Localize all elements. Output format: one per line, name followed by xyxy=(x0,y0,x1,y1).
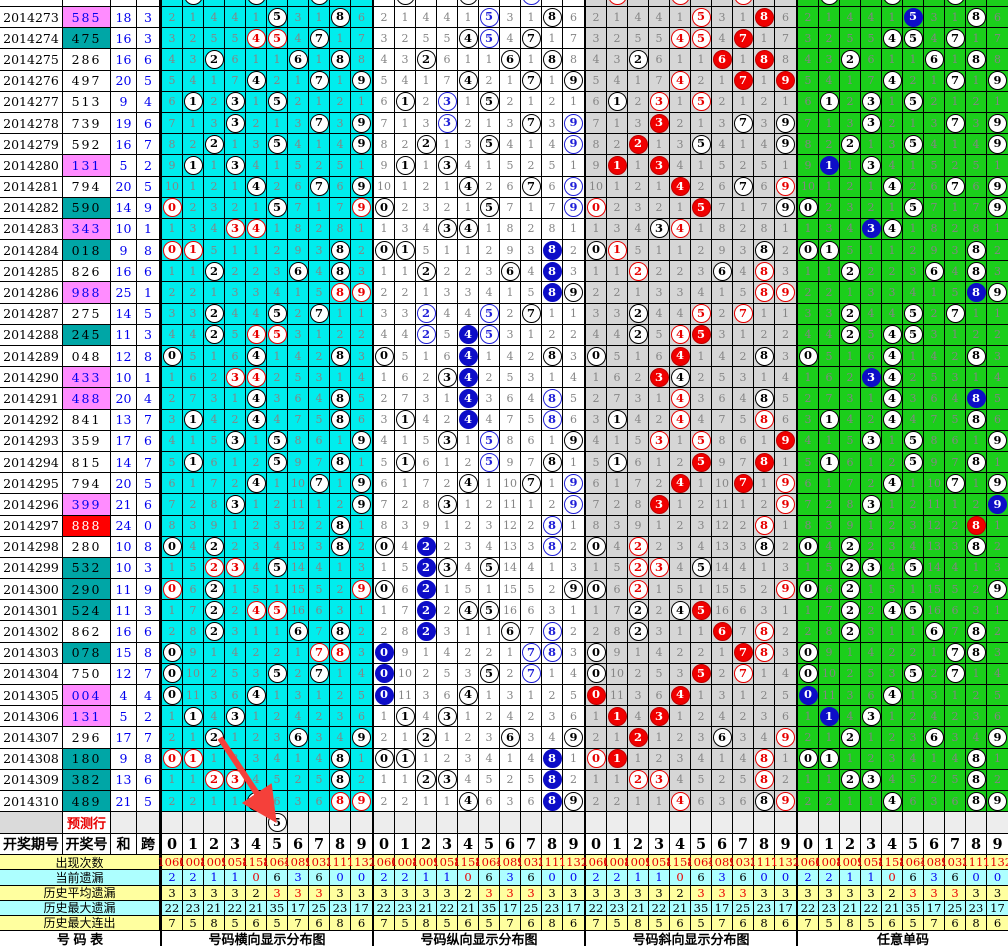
grid-cell: 1 xyxy=(670,198,691,219)
grid-cell: 1 xyxy=(246,431,267,452)
grid-cell: 3 xyxy=(225,770,246,791)
grid-cell: 8 xyxy=(966,219,987,240)
stat-value: 22 xyxy=(162,901,183,916)
grid-cell: 5 xyxy=(521,579,542,600)
grid-cell: 2 xyxy=(840,579,861,600)
prediction-cell xyxy=(416,812,437,834)
grid-cell: 9 xyxy=(775,727,796,748)
grid-cell: 6 xyxy=(966,177,987,198)
stat-value: 3 xyxy=(754,886,775,901)
grid-cell: 1 xyxy=(903,113,924,134)
draw-row: 2014289048128051641428305164142830516414… xyxy=(0,346,1008,367)
grid-cell: 4 xyxy=(903,282,924,303)
grid-cell: 7 xyxy=(437,71,458,92)
panel-diagonal: 2213341589 xyxy=(584,282,796,303)
draw-digit-circle: 2 xyxy=(417,558,436,577)
draw-digit-circle: 1 xyxy=(396,156,415,175)
grid-cell: 4 xyxy=(775,367,796,388)
grid-cell: 1 xyxy=(819,749,840,770)
grid-cell: 1 xyxy=(628,71,649,92)
draw-digit-circle: 3 xyxy=(438,92,457,111)
draw-digit-circle: 8 xyxy=(755,643,774,662)
grid-cell: 2 xyxy=(628,600,649,621)
grid-cell: 1 xyxy=(395,240,416,261)
number-cell: 290 xyxy=(63,579,111,600)
grid-cell: 3 xyxy=(330,113,351,134)
grid-cell: 2 xyxy=(945,155,966,176)
grid-cell: 4 xyxy=(374,431,395,452)
draw-digit-circle: 4 xyxy=(459,71,478,90)
grid-cell: 1 xyxy=(607,261,628,282)
grid-cell: 2 xyxy=(903,706,924,727)
grid-cell: 8 xyxy=(586,134,607,155)
grid-cell: 4 xyxy=(733,749,754,770)
draw-row-labels: 2014304750127 xyxy=(0,664,160,685)
grid-cell: 1 xyxy=(754,71,775,92)
grid-cell: 8 xyxy=(586,516,607,537)
draw-digit-circle: 9 xyxy=(776,198,795,217)
grid-cell: 8 xyxy=(542,219,563,240)
grid-cell: 4 xyxy=(374,49,395,70)
grid-cell: 3 xyxy=(798,410,819,431)
grid-cell: 1 xyxy=(670,621,691,642)
grid-cell: 9 xyxy=(204,516,225,537)
draw-row-labels: 2014302862166 xyxy=(0,621,160,642)
grid-cell: 3 xyxy=(649,367,670,388)
stat-value: 3 xyxy=(288,870,309,885)
draw-digit-circle: 5 xyxy=(904,325,923,344)
grid-cell: 9 xyxy=(351,71,372,92)
grid-cell: 4 xyxy=(712,134,733,155)
number-cell: 988 xyxy=(63,282,111,303)
prediction-cell xyxy=(162,812,183,834)
stat-value: 17 xyxy=(351,901,372,916)
grid-cell: 5 xyxy=(458,579,479,600)
sum-cell: 13 xyxy=(111,410,137,431)
grid-cell: 5 xyxy=(903,28,924,49)
grid-cell: 6 xyxy=(712,49,733,70)
stat-value: 3 xyxy=(712,886,733,901)
draw-digit-circle: 4 xyxy=(247,325,266,344)
grid-cell: 2 xyxy=(798,621,819,642)
panel-diagonal: 0914221783 xyxy=(584,643,796,664)
panel-vertical: 4326116188 xyxy=(372,49,584,70)
period-cell: 2014289 xyxy=(0,346,63,367)
grid-cell: 5 xyxy=(246,579,267,600)
grid-cell: 2 xyxy=(437,198,458,219)
grid-cell: 2 xyxy=(225,410,246,431)
grid-cell: 7 xyxy=(987,28,1008,49)
grid-cell: 4 xyxy=(563,664,584,685)
stat-row: 历史最大遗漏2223212221351725231722232122213517… xyxy=(0,901,1008,916)
grid-cell: 4 xyxy=(819,71,840,92)
sum-cell: 12 xyxy=(111,664,137,685)
grid-cell: 4 xyxy=(966,727,987,748)
grid-cell: 1 xyxy=(987,219,1008,240)
grid-cell: 1 xyxy=(542,431,563,452)
grid-cell: 2 xyxy=(966,0,987,7)
grid-cell: 7 xyxy=(309,177,330,198)
grid-cell: 1 xyxy=(479,346,500,367)
draw-digit-circle: 7 xyxy=(734,29,753,48)
grid-cell: 3 xyxy=(903,388,924,409)
draw-digit-circle: 2 xyxy=(205,135,224,154)
draw-digit-circle: 3 xyxy=(438,431,457,450)
grid-cell: 5 xyxy=(374,71,395,92)
draw-digit-circle: 9 xyxy=(776,114,795,133)
draw-row-labels: 2014285826166 xyxy=(0,261,160,282)
stat-value: 2 xyxy=(246,886,267,901)
grid-cell: 4 xyxy=(882,473,903,494)
draw-digit-circle: 8 xyxy=(331,283,350,302)
draw-digit-circle: 1 xyxy=(396,0,415,5)
grid-cell: 2 xyxy=(246,727,267,748)
draw-digit-circle: 3 xyxy=(438,707,457,726)
draw-digit-circle: 5 xyxy=(692,304,711,323)
draw-digit-circle: 8 xyxy=(967,262,986,281)
grid-cell: 4 xyxy=(840,410,861,431)
grid-cell: 4 xyxy=(882,155,903,176)
grid-cell: 2 xyxy=(670,261,691,282)
panel-vertical: 17224516631 xyxy=(372,600,584,621)
period-cell: 2014303 xyxy=(0,643,63,664)
grid-cell: 7 xyxy=(966,198,987,219)
draw-row-labels: 2014274475163 xyxy=(0,28,160,49)
grid-cell: 8 xyxy=(798,134,819,155)
period-cell: 2014305 xyxy=(0,685,63,706)
span-cell: 8 xyxy=(137,749,160,770)
draw-digit-circle: 5 xyxy=(904,601,923,620)
panel-horizontal: 2144153186 xyxy=(160,7,372,28)
grid-cell: 2 xyxy=(416,92,437,113)
panel-vertical: 3324452711 xyxy=(372,304,584,325)
grid-cell: 7 xyxy=(945,452,966,473)
grid-cell: 4 xyxy=(246,600,267,621)
grid-cell: 2 xyxy=(628,325,649,346)
grid-cell: 3 xyxy=(649,113,670,134)
grid-cell: 6 xyxy=(733,791,754,812)
grid-cell: 15 xyxy=(288,579,309,600)
sum-cell: 15 xyxy=(111,643,137,664)
draw-digit-circle: 8 xyxy=(331,347,350,366)
grid-cell: 2 xyxy=(691,0,712,7)
panel-single: 2121236349 xyxy=(796,727,1008,748)
digit-header: 2 xyxy=(204,834,225,855)
draw-digit-circle: 5 xyxy=(692,453,711,472)
panel-single: 4326116188 xyxy=(796,49,1008,70)
draw-digit-circle: 8 xyxy=(543,410,562,429)
grid-cell: 2 xyxy=(162,7,183,28)
grid-cell: 8 xyxy=(754,516,775,537)
grid-cell: 1 xyxy=(840,346,861,367)
grid-cell: 9 xyxy=(607,643,628,664)
span-cell: 5 xyxy=(137,791,160,812)
grid-cell: 2 xyxy=(458,113,479,134)
span-cell: 5 xyxy=(137,473,160,494)
grid-cell: 1 xyxy=(819,113,840,134)
draw-digit-circle: 9 xyxy=(352,198,371,217)
grid-cell: 1 xyxy=(607,410,628,431)
span-cell: 2 xyxy=(137,706,160,727)
grid-cell: 0 xyxy=(586,346,607,367)
panel-single: 9113415251 xyxy=(796,155,1008,176)
draw-digit-circle: 5 xyxy=(480,325,499,344)
period-cell: 2014286 xyxy=(0,282,63,303)
grid-cell: 3 xyxy=(225,431,246,452)
grid-cell: 1 xyxy=(330,367,351,388)
grid-cell: 1 xyxy=(670,7,691,28)
draw-digit-circle: 5 xyxy=(268,664,287,683)
draw-digit-circle: 5 xyxy=(268,558,287,577)
grid-cell: 2 xyxy=(775,621,796,642)
grid-cell: 6 xyxy=(162,92,183,113)
grid-cell: 1 xyxy=(437,388,458,409)
draw-digit-circle: 1 xyxy=(396,453,415,472)
grid-cell: 2 xyxy=(204,92,225,113)
grid-cell: 6 xyxy=(204,452,225,473)
grid-cell: 4 xyxy=(670,0,691,7)
period-cell: 2014275 xyxy=(0,49,63,70)
grid-cell: 3 xyxy=(225,494,246,515)
draw-digit-circle: 2 xyxy=(205,50,224,69)
grid-cell: 4 xyxy=(458,410,479,431)
stat-value: 0 xyxy=(966,870,987,885)
stat-value: 25 xyxy=(945,901,966,916)
draw-row: 2014303078158091422178309142217830914221… xyxy=(0,643,1008,664)
draw-digit-circle: 4 xyxy=(883,325,902,344)
grid-cell: 6 xyxy=(649,685,670,706)
draw-digit-circle: 9 xyxy=(352,71,371,90)
panel-horizontal: 2731436485 xyxy=(160,388,372,409)
grid-cell: 3 xyxy=(924,685,945,706)
grid-cell: 1 xyxy=(563,452,584,473)
grid-cell: 8 xyxy=(330,516,351,537)
grid-cell: 1 xyxy=(288,282,309,303)
grid-cell: 3 xyxy=(628,113,649,134)
grid-cell: 3 xyxy=(437,558,458,579)
panel-diagonal: 4425453122 xyxy=(584,325,796,346)
stat-value: 7 xyxy=(798,916,819,931)
grid-cell: 1 xyxy=(607,749,628,770)
panel-horizontal: 3324452711 xyxy=(160,304,372,325)
grid-cell: 7 xyxy=(712,198,733,219)
grid-cell: 3 xyxy=(330,600,351,621)
grid-cell: 15 xyxy=(924,579,945,600)
draw-digit-circle: 3 xyxy=(438,219,457,238)
grid-cell: 4 xyxy=(437,7,458,28)
panel-vertical: 3255454717 xyxy=(372,28,584,49)
draw-digit-circle: 8 xyxy=(331,50,350,69)
grid-cell: 4 xyxy=(861,643,882,664)
grid-cell: 1 xyxy=(416,643,437,664)
draw-digit-circle: 1 xyxy=(608,156,627,175)
grid-cell: 11 xyxy=(924,494,945,515)
grid-cell: 9 xyxy=(987,113,1008,134)
grid-cell: 8 xyxy=(754,346,775,367)
stat-value: 8 xyxy=(754,916,775,931)
stat-value: 1 xyxy=(628,870,649,885)
grid-cell: 2 xyxy=(861,749,882,770)
draw-row-labels: 201430613152 xyxy=(0,706,160,727)
draw-row: 2014280131529113415251911341525191134152… xyxy=(0,155,1008,176)
grid-cell: 9 xyxy=(416,516,437,537)
grid-cell: 4 xyxy=(416,7,437,28)
draw-digit-circle: 1 xyxy=(608,241,627,260)
grid-cell: 1 xyxy=(330,558,351,579)
grid-cell: 2 xyxy=(204,177,225,198)
grid-cell: 2 xyxy=(542,92,563,113)
number-cell: 826 xyxy=(63,261,111,282)
grid-cell: 3 xyxy=(754,600,775,621)
grid-cell: 5 xyxy=(267,198,288,219)
grid-cell: 2 xyxy=(309,219,330,240)
period-cell: 2014308 xyxy=(0,749,63,770)
draw-digit-circle: 2 xyxy=(629,304,648,323)
grid-cell: 2 xyxy=(395,28,416,49)
grid-cell: 3 xyxy=(712,113,733,134)
prediction-cell xyxy=(458,812,479,834)
draw-digit-circle: 4 xyxy=(883,686,902,705)
stat-value: 21 xyxy=(416,901,437,916)
grid-cell: 4 xyxy=(162,325,183,346)
draw-digit-circle: 0 xyxy=(163,241,182,260)
grid-cell: 2 xyxy=(563,325,584,346)
grid-cell: 2 xyxy=(903,0,924,7)
grid-cell: 1 xyxy=(162,600,183,621)
panel-title-diagonal: 号码斜向显示分布图 xyxy=(584,931,796,946)
grid-cell: 3 xyxy=(945,240,966,261)
grid-cell: 7 xyxy=(733,113,754,134)
grid-cell: 0 xyxy=(374,685,395,706)
prediction-row: 预测行 5 xyxy=(0,812,1008,834)
grid-cell: 1 xyxy=(903,685,924,706)
draw-digit-circle: 8 xyxy=(755,453,774,472)
grid-cell: 1 xyxy=(861,134,882,155)
grid-cell: 9 xyxy=(288,240,309,261)
grid-cell: 5 xyxy=(267,28,288,49)
draw-digit-circle: 4 xyxy=(459,686,478,705)
period-cell: 2014300 xyxy=(0,579,63,600)
grid-cell: 1 xyxy=(712,71,733,92)
number-cell: 488 xyxy=(63,388,111,409)
grid-cell: 1 xyxy=(563,155,584,176)
grid-cell: 2 xyxy=(903,643,924,664)
stat-value: 1 xyxy=(416,870,437,885)
grid-cell: 8 xyxy=(754,49,775,70)
panel-horizontal: 8221354149 xyxy=(160,134,372,155)
grid-cell: 4 xyxy=(225,643,246,664)
grid-cell: 1 xyxy=(733,685,754,706)
grid-cell: 1 xyxy=(607,431,628,452)
span-cell: 7 xyxy=(137,134,160,155)
grid-cell: 8 xyxy=(330,410,351,431)
draw-digit-circle: 3 xyxy=(862,707,881,726)
grid-cell: 5 xyxy=(267,7,288,28)
draw-digit-circle: 8 xyxy=(543,537,562,556)
grid-cell: 4 xyxy=(183,71,204,92)
draw-digit-circle: 9 xyxy=(776,495,795,514)
grid-cell: 6 xyxy=(924,261,945,282)
draw-digit-circle: 0 xyxy=(799,643,818,662)
draw-digit-circle: 4 xyxy=(671,686,690,705)
draw-digit-circle: 5 xyxy=(268,453,287,472)
grid-cell: 3 xyxy=(819,49,840,70)
grid-cell: 7 xyxy=(521,304,542,325)
grid-cell: 8 xyxy=(754,643,775,664)
draw-digit-circle: 5 xyxy=(268,431,287,450)
grid-cell: 2 xyxy=(374,388,395,409)
grid-cell: 9 xyxy=(775,791,796,812)
span-cell: 5 xyxy=(137,71,160,92)
grid-cell: 4 xyxy=(670,71,691,92)
draw-digit-circle: 9 xyxy=(352,283,371,302)
draw-digit-circle: 7 xyxy=(734,71,753,90)
grid-cell: 1 xyxy=(861,388,882,409)
grid-cell: 2 xyxy=(840,304,861,325)
sum-cell: 11 xyxy=(111,325,137,346)
sum-cell: 18 xyxy=(111,7,137,28)
grid-cell: 1 xyxy=(754,367,775,388)
panel-diagonal: 2211463689 xyxy=(584,791,796,812)
panel-vertical: 3142447586 xyxy=(372,410,584,431)
prediction-cell: 5 xyxy=(267,812,288,834)
grid-cell: 3 xyxy=(246,282,267,303)
grid-cell: 9 xyxy=(840,516,861,537)
grid-cell: 4 xyxy=(798,49,819,70)
panel-horizontal: 17224516631 xyxy=(160,600,372,621)
grid-cell: 5 xyxy=(798,452,819,473)
grid-cell: 1 xyxy=(607,240,628,261)
grid-cell: 5 xyxy=(691,664,712,685)
stat-row: 出现次数106010081009105811581064108910331117… xyxy=(0,855,1008,870)
grid-cell: 2 xyxy=(309,346,330,367)
grid-cell: 1 xyxy=(607,706,628,727)
grid-cell: 7 xyxy=(628,473,649,494)
grid-cell: 5 xyxy=(351,0,372,7)
stat-value: 23 xyxy=(754,901,775,916)
grid-cell: 2 xyxy=(712,0,733,7)
sum-cell: 13 xyxy=(111,770,137,791)
grid-cell: 13 xyxy=(712,537,733,558)
grid-cell: 8 xyxy=(966,516,987,537)
grid-cell: 1 xyxy=(395,0,416,7)
grid-cell: 2 xyxy=(819,134,840,155)
span-cell: 7 xyxy=(137,727,160,748)
grid-cell: 4 xyxy=(246,388,267,409)
grid-cell: 3 xyxy=(246,749,267,770)
panel-diagonal: 3142447586 xyxy=(584,410,796,431)
grid-cell: 11 xyxy=(607,685,628,706)
grid-cell: 1 xyxy=(987,92,1008,113)
grid-cell: 2 xyxy=(840,92,861,113)
span-cell: 8 xyxy=(137,346,160,367)
panel-diagonal: 1133422725 xyxy=(584,0,796,7)
grid-cell: 2 xyxy=(416,664,437,685)
grid-cell: 1 xyxy=(183,749,204,770)
grid-cell: 2 xyxy=(437,261,458,282)
grid-cell: 5 xyxy=(691,92,712,113)
panel-vertical: 2211463689 xyxy=(372,791,584,812)
grid-cell: 6 xyxy=(309,791,330,812)
sum-cell: 24 xyxy=(111,516,137,537)
grid-cell: 5 xyxy=(563,388,584,409)
grid-cell: 7 xyxy=(521,643,542,664)
draw-digit-circle: 8 xyxy=(967,410,986,429)
grid-cell: 6 xyxy=(437,49,458,70)
grid-cell: 6 xyxy=(819,367,840,388)
draw-digit-circle: 0 xyxy=(163,643,182,662)
grid-cell: 4 xyxy=(670,177,691,198)
